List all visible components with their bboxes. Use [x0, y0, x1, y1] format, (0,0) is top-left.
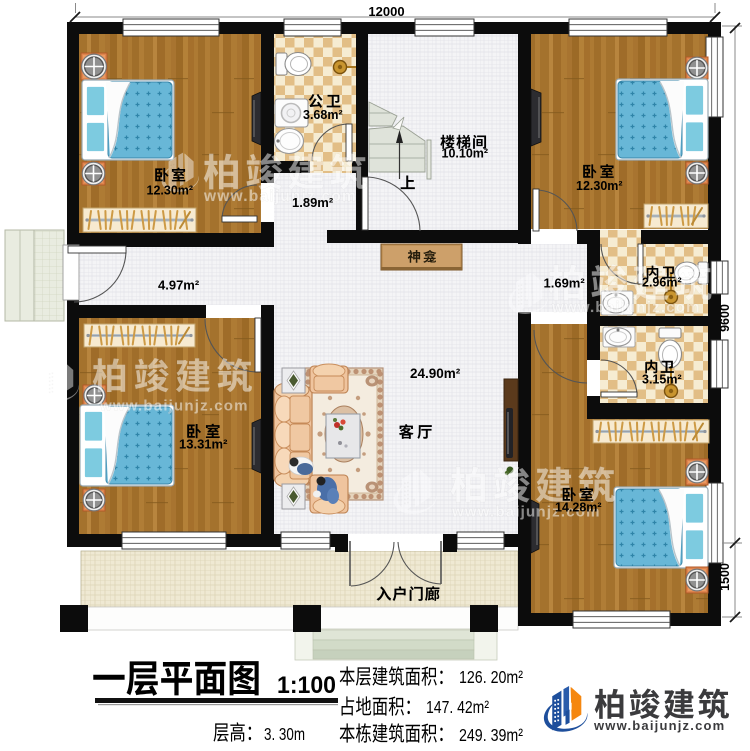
svg-text:10.10m²: 10.10m²	[442, 147, 489, 161]
svg-text:24.90m²: 24.90m²	[410, 366, 461, 381]
svg-text:2.96m²: 2.96m²	[642, 276, 682, 290]
svg-text:12000: 12000	[368, 4, 404, 19]
svg-text:www.baijunjz.com: www.baijunjz.com	[99, 398, 249, 415]
svg-text:12.30m²: 12.30m²	[576, 179, 623, 193]
svg-text:www.baijunjz.com: www.baijunjz.com	[593, 718, 725, 733]
svg-text:9600: 9600	[718, 304, 732, 332]
svg-text:3.68m²: 3.68m²	[303, 108, 343, 122]
svg-text:147. 42m²: 147. 42m²	[426, 697, 489, 717]
svg-text:3. 30m: 3. 30m	[264, 724, 305, 744]
svg-text:249. 39m²: 249. 39m²	[459, 725, 523, 745]
svg-text:14.28m²: 14.28m²	[555, 501, 602, 515]
svg-text:126. 20m²: 126. 20m²	[459, 667, 523, 687]
svg-text:www.baijunjz.com: www.baijunjz.com	[203, 188, 357, 205]
svg-text:4.97m²: 4.97m²	[158, 278, 200, 293]
svg-text:3.15m²: 3.15m²	[642, 373, 682, 387]
svg-text:13.31m²: 13.31m²	[179, 437, 228, 452]
svg-text:1:100: 1:100	[277, 672, 336, 699]
svg-text:www.baijunjz.com: www.baijunjz.com	[551, 299, 701, 316]
svg-text:1.69m²: 1.69m²	[544, 276, 586, 291]
svg-text:1.89m²: 1.89m²	[292, 195, 334, 210]
svg-text:1500: 1500	[718, 563, 732, 591]
svg-text:12.30m²: 12.30m²	[147, 184, 194, 198]
